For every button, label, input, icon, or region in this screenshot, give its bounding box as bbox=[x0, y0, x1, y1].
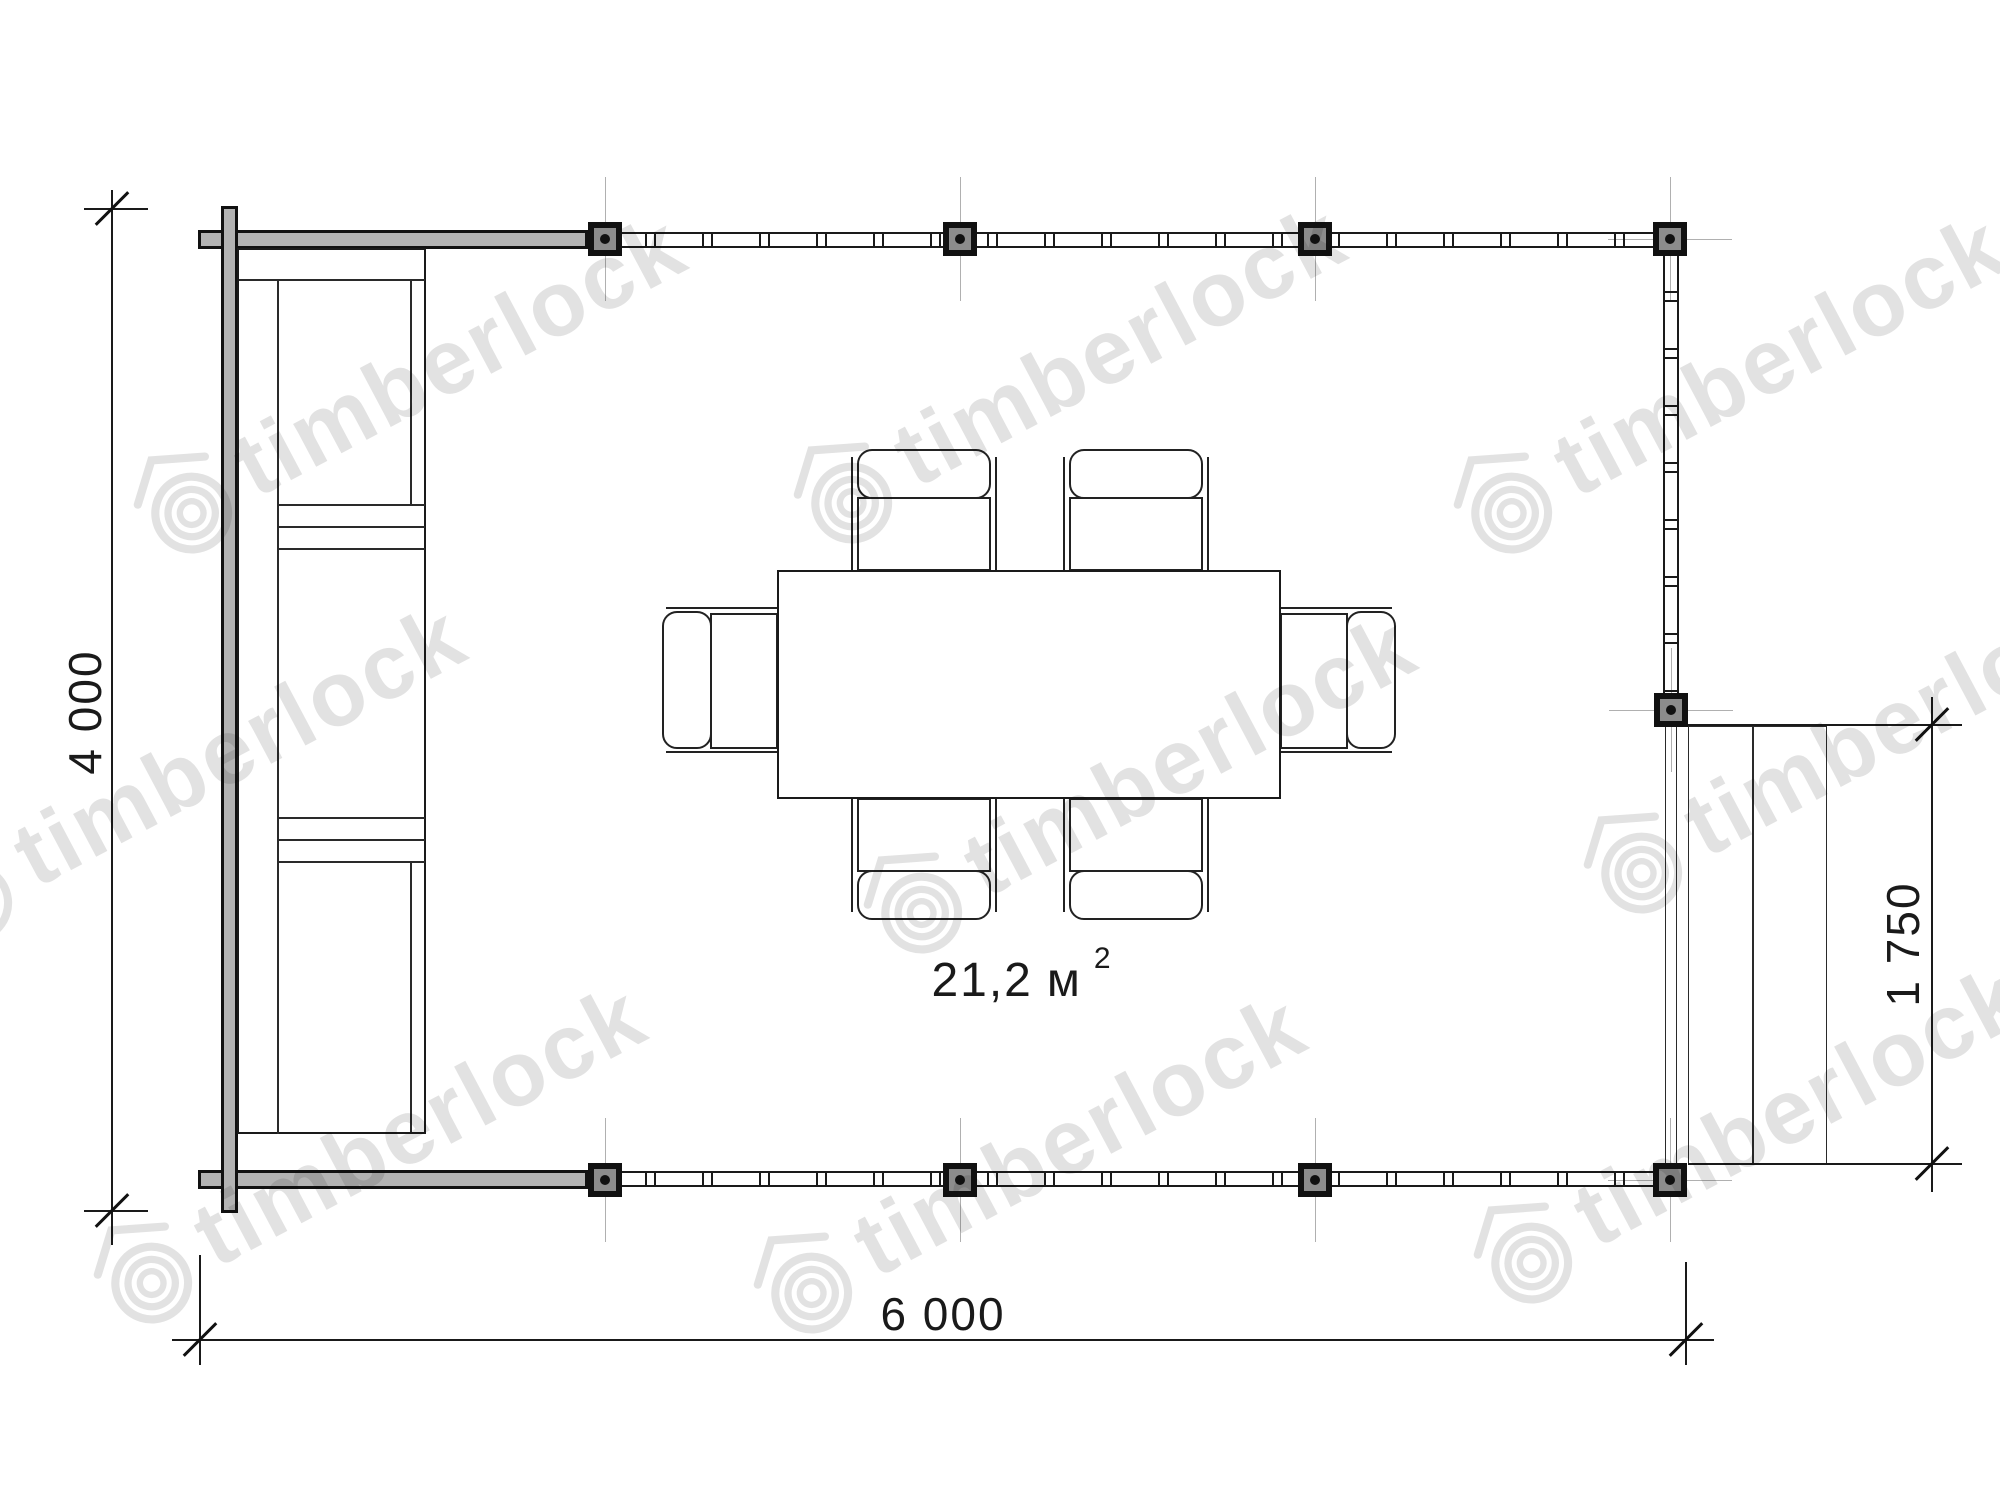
chair-bottom-2-rail bbox=[1207, 798, 1209, 912]
post-center-dot bbox=[955, 1175, 965, 1185]
entrance-floor-edge bbox=[1665, 727, 1677, 1164]
sideboard-outline bbox=[237, 248, 426, 1134]
chair-right-seat bbox=[1280, 613, 1348, 749]
dim-width-ext-left bbox=[199, 1255, 201, 1365]
area-value: 21,2 bbox=[931, 954, 1032, 1007]
post-center-dot bbox=[1310, 234, 1320, 244]
post bbox=[1653, 222, 1687, 256]
bottom-beam bbox=[198, 1170, 588, 1189]
chair-top-1-rail bbox=[851, 457, 853, 571]
sideboard-divider bbox=[278, 839, 425, 841]
sideboard-divider bbox=[278, 817, 425, 819]
steps-outline bbox=[1688, 726, 1827, 1165]
dim-height-ext-bottom bbox=[84, 1210, 148, 1212]
chair-top-2-rail bbox=[1207, 457, 1209, 571]
dim-height-line bbox=[111, 190, 113, 1245]
post-center-dot bbox=[600, 1175, 610, 1185]
dining-table bbox=[777, 570, 1281, 799]
sideboard-divider bbox=[278, 548, 425, 550]
log-roof-logo-icon bbox=[1431, 423, 1578, 580]
post bbox=[943, 1163, 977, 1197]
bottom-railing bbox=[588, 1171, 1684, 1187]
chair-bottom-2-rail bbox=[1063, 798, 1065, 912]
chair-bottom-2-seat bbox=[1069, 798, 1203, 872]
dim-porch-line bbox=[1931, 697, 1933, 1192]
sideboard-front-inset bbox=[410, 280, 412, 505]
chair-left-rail bbox=[666, 607, 778, 609]
sideboard-divider bbox=[278, 504, 425, 506]
post bbox=[1298, 1163, 1332, 1197]
area-superscript: 2 bbox=[1094, 942, 1113, 975]
chair-top-2-seat bbox=[1069, 497, 1203, 571]
post-center-dot bbox=[955, 234, 965, 244]
post bbox=[1654, 693, 1688, 727]
post-center-dot bbox=[600, 234, 610, 244]
post-center-dot bbox=[1310, 1175, 1320, 1185]
log-roof-logo-icon bbox=[71, 1193, 218, 1350]
log-roof-logo-icon bbox=[1561, 783, 1708, 940]
post bbox=[588, 222, 622, 256]
post-center-dot bbox=[1666, 705, 1676, 715]
post bbox=[1653, 1163, 1687, 1197]
watermark-text: timberlock bbox=[837, 973, 1324, 1298]
chair-top-1-seat bbox=[857, 497, 991, 571]
dim-width-ext-right bbox=[1685, 1262, 1687, 1365]
chair-left-rail bbox=[666, 751, 778, 753]
dim-width-label: 6 000 bbox=[843, 1290, 1043, 1338]
log-roof-logo-icon bbox=[1451, 1173, 1598, 1330]
sideboard-back-line bbox=[277, 279, 279, 1134]
chair-top-2-rail bbox=[1063, 457, 1065, 571]
step-tread-line bbox=[1752, 726, 1754, 1165]
floor-plan-canvas: 4 000 6 000 1 750 21,2м2 timberlocktimbe… bbox=[0, 0, 2000, 1500]
sideboard-divider bbox=[278, 526, 425, 528]
area-label: 21,2м2 bbox=[872, 942, 1172, 1002]
dim-height-label: 4 000 bbox=[61, 612, 109, 812]
chair-right-back bbox=[1346, 611, 1396, 749]
chair-right-rail bbox=[1280, 751, 1392, 753]
right-railing bbox=[1663, 249, 1679, 701]
left-wall bbox=[221, 206, 238, 1213]
chair-bottom-1-seat bbox=[857, 798, 991, 872]
chair-right-rail bbox=[1280, 607, 1392, 609]
chair-top-2-back bbox=[1069, 449, 1203, 499]
chair-bottom-1-rail bbox=[995, 798, 997, 912]
dim-height-ext-top bbox=[84, 208, 148, 210]
chair-top-1-rail bbox=[995, 457, 997, 571]
sideboard-front-inset bbox=[410, 862, 412, 1132]
sideboard-divider bbox=[278, 861, 425, 863]
chair-bottom-1-rail bbox=[851, 798, 853, 912]
log-roof-logo-icon bbox=[0, 813, 38, 970]
post-center-dot bbox=[1665, 234, 1675, 244]
chair-left-back bbox=[662, 611, 712, 749]
post bbox=[1298, 222, 1332, 256]
top-beam bbox=[198, 230, 588, 249]
chair-bottom-1-back bbox=[857, 870, 991, 920]
post bbox=[588, 1163, 622, 1197]
chair-bottom-2-back bbox=[1069, 870, 1203, 920]
area-unit: м bbox=[1047, 954, 1082, 1007]
post-center-dot bbox=[1665, 1175, 1675, 1185]
dim-porch-label: 1 750 bbox=[1879, 844, 1927, 1044]
top-railing bbox=[588, 232, 1684, 248]
chair-left-seat bbox=[710, 613, 778, 749]
post bbox=[943, 222, 977, 256]
sideboard-top-line bbox=[239, 279, 425, 281]
chair-top-1-back bbox=[857, 449, 991, 499]
